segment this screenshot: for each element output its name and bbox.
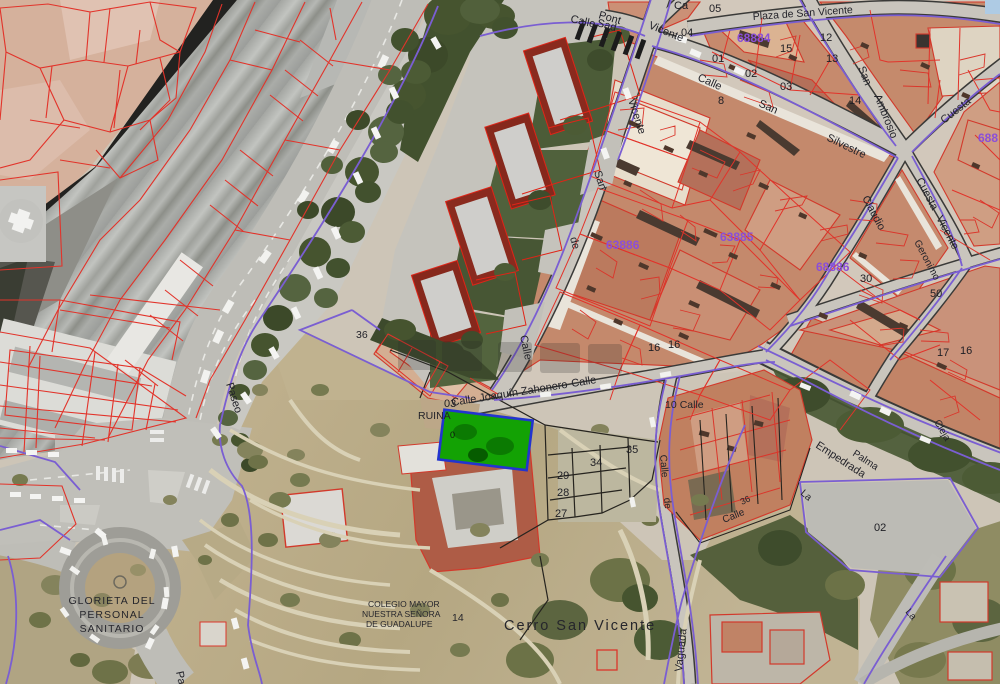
svg-text:de: de — [661, 497, 673, 509]
svg-text:01: 01 — [712, 53, 724, 65]
svg-text:DE GUADALUPE: DE GUADALUPE — [366, 619, 433, 629]
svg-text:0: 0 — [450, 430, 455, 440]
svg-text:03: 03 — [780, 81, 792, 93]
svg-text:36: 36 — [356, 329, 368, 341]
svg-text:63885: 63885 — [720, 230, 754, 244]
svg-text:PERSONAL: PERSONAL — [79, 609, 144, 621]
svg-text:03: 03 — [444, 398, 456, 410]
svg-text:16: 16 — [648, 342, 660, 354]
svg-text:02: 02 — [745, 68, 757, 80]
svg-text:8: 8 — [718, 95, 724, 107]
svg-text:13: 13 — [826, 53, 838, 65]
svg-text:27: 27 — [555, 508, 567, 520]
svg-text:17: 17 — [937, 347, 949, 359]
svg-text:05: 05 — [709, 3, 721, 15]
svg-text:35: 35 — [626, 444, 638, 456]
svg-text:14: 14 — [849, 95, 861, 107]
svg-text:29: 29 — [557, 470, 569, 482]
svg-text:10Calle: 10Calle — [665, 399, 704, 411]
svg-text:68886: 68886 — [816, 260, 850, 274]
svg-text:68884: 68884 — [737, 31, 771, 45]
svg-text:63886: 63886 — [606, 238, 640, 252]
svg-text:28: 28 — [557, 487, 569, 499]
svg-text:15: 15 — [780, 43, 792, 55]
svg-text:14: 14 — [452, 612, 464, 624]
svg-text:12: 12 — [820, 32, 832, 44]
svg-text:SANITARIO: SANITARIO — [80, 623, 145, 635]
svg-text:30: 30 — [860, 273, 872, 285]
svg-text:04: 04 — [681, 27, 693, 39]
svg-text:688: 688 — [978, 131, 998, 145]
svg-text:Calle: Calle — [657, 454, 670, 478]
svg-text:RUINA: RUINA — [418, 410, 451, 422]
svg-text:16: 16 — [668, 339, 680, 351]
svg-text:02: 02 — [874, 522, 886, 534]
svg-text:16: 16 — [960, 345, 972, 357]
svg-text:34: 34 — [590, 457, 602, 469]
svg-text:Ca: Ca — [674, 0, 689, 12]
svg-text:NUESTRA SEÑORA: NUESTRA SEÑORA — [362, 609, 441, 619]
svg-text:GLORIETA DEL: GLORIETA DEL — [68, 595, 155, 607]
svg-text:COLEGIO MAYOR: COLEGIO MAYOR — [368, 599, 440, 609]
svg-text:50: 50 — [930, 288, 942, 300]
svg-text:Cerro San Vicente: Cerro San Vicente — [504, 618, 656, 634]
